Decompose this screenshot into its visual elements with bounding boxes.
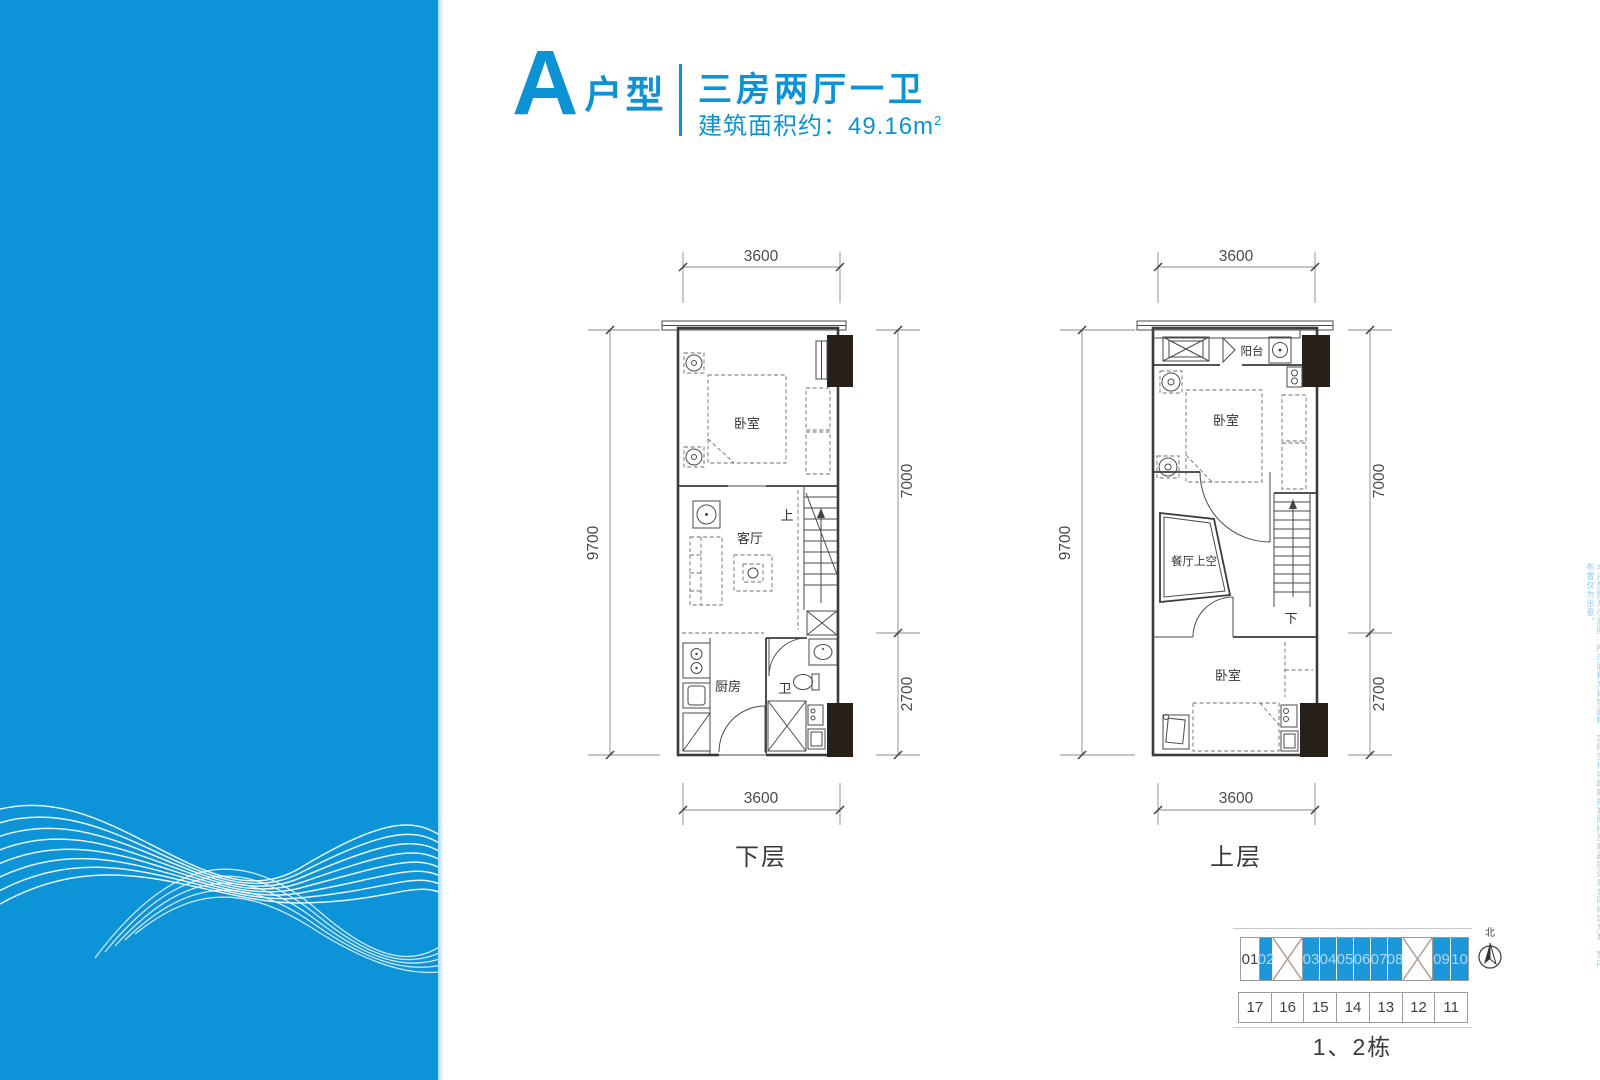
- north-compass-icon: 北: [1470, 924, 1510, 980]
- kitchen-fixtures: [683, 638, 765, 755]
- unit-suffix-label: 户型: [578, 77, 666, 121]
- dim-left: 9700: [585, 326, 660, 759]
- structural-block: [827, 335, 853, 387]
- bedroom-furniture: [684, 353, 830, 474]
- dim-top: 3600: [679, 248, 844, 303]
- dim-bottom: 3600: [679, 783, 844, 825]
- dim-left: 9700: [1057, 326, 1135, 759]
- room-label-living: 客厅: [737, 531, 763, 546]
- room-label-bedroom2: 卧室: [1215, 668, 1241, 683]
- keyplan-top-rule: [1233, 928, 1472, 929]
- title-divider: [679, 64, 682, 136]
- dim-value: 3600: [1219, 248, 1254, 265]
- dim-value: 2700: [899, 676, 916, 711]
- unit-cell-highlight: 08: [1388, 938, 1403, 980]
- room-label-bath: 卫: [778, 681, 791, 696]
- structural-block: [827, 703, 853, 757]
- unit-outline: [1153, 328, 1317, 755]
- balcony-fixtures: [1153, 337, 1302, 387]
- dim-value: 7000: [1371, 463, 1388, 498]
- floorplan-brochure-page: A 户型 三房两厅一卫 建筑面积约：49.16m2 3600 9700: [0, 0, 1600, 1080]
- blue-side-panel: [0, 0, 438, 1080]
- staircase: [804, 487, 838, 610]
- area-text: 建筑面积约：49.16m: [698, 113, 934, 140]
- structural-block: [1302, 335, 1330, 387]
- unit-cell-highlight: 02: [1260, 938, 1273, 980]
- compass-north-label: 北: [1485, 927, 1495, 939]
- dim-top: 3600: [1154, 248, 1319, 303]
- unit-type-title: A 户型: [512, 46, 666, 121]
- dim-value: 3600: [744, 790, 779, 807]
- stair-direction-label: 下: [1284, 611, 1297, 626]
- floor-caption-lower: 下层: [735, 844, 787, 871]
- layout-title: 三房两厅一卫: [698, 62, 926, 111]
- interior-walls: [678, 486, 838, 755]
- crossed-cell: [1273, 938, 1303, 980]
- dim-value: 3600: [744, 248, 779, 265]
- unit-row-bottom: 17 16 15 14 13 12 11: [1238, 992, 1468, 1023]
- dim-value: 7000: [899, 463, 916, 498]
- floor-caption-upper: 上层: [1210, 844, 1262, 871]
- dim-value: 9700: [585, 525, 602, 560]
- dim-right: 7000 2700: [876, 326, 920, 759]
- room-label-balcony: 阳台: [1241, 344, 1264, 358]
- unit-cell: 14: [1337, 993, 1370, 1022]
- unit-cell: 17: [1239, 993, 1272, 1022]
- dim-right: 7000 2700: [1348, 326, 1392, 759]
- dim-bottom: 3600: [1154, 783, 1319, 825]
- unit-cell: 13: [1370, 993, 1403, 1022]
- dim-value: 3600: [1219, 790, 1254, 807]
- unit-cell-highlight: 09: [1433, 938, 1451, 980]
- crossed-cell: [1403, 938, 1433, 980]
- area-label: 建筑面积约：49.16m2: [698, 106, 942, 141]
- unit-letter: A: [512, 46, 578, 121]
- cross-icon: [1403, 938, 1432, 980]
- area-exponent: 2: [934, 113, 942, 128]
- unit-cell: 15: [1304, 993, 1337, 1022]
- unit-cell: 12: [1403, 993, 1436, 1022]
- cross-icon: [1273, 938, 1302, 980]
- dim-value: 2700: [1371, 676, 1388, 711]
- unit-cell-highlight: 05: [1337, 938, 1354, 980]
- building-key-plan: 01 02 03 04 05 06 07 08 09 10 17 16 15 1…: [1233, 928, 1483, 1068]
- unit-cell-highlight: 10: [1451, 938, 1468, 980]
- room-label-dining-void: 餐厅上空: [1171, 554, 1217, 568]
- building-caption: 1、2栋: [1233, 1028, 1472, 1062]
- unit-cell-highlight: 04: [1320, 938, 1337, 980]
- wave-pattern-graphic: [0, 0, 438, 1080]
- unit-cell: 11: [1435, 993, 1467, 1022]
- unit-row-top: 01 02 03 04 05 06 07 08 09 10: [1240, 937, 1469, 981]
- compass: 北: [1470, 924, 1510, 980]
- unit-cell-highlight: 07: [1371, 938, 1388, 980]
- panel-edge-fade: [438, 0, 444, 1080]
- bedroom2-furniture: [1163, 642, 1313, 751]
- staircase: [1274, 493, 1310, 607]
- stair-direction-label: 上: [780, 508, 793, 523]
- room-label-bedroom: 卧室: [734, 416, 760, 431]
- unit-cell-highlight: 03: [1303, 938, 1320, 980]
- room-label-kitchen: 厨房: [715, 679, 741, 694]
- disclaimer-text: 本户型图为示意图，所示面积为建筑面积，实际交付以政府批准图纸及商品房买卖合同约定…: [1585, 563, 1600, 973]
- unit-cell-highlight: 06: [1354, 938, 1371, 980]
- upper-floor-plan: 3600 9700 7000 2700: [1030, 225, 1450, 885]
- dim-value: 9700: [1057, 525, 1074, 560]
- structural-block: [1300, 703, 1328, 757]
- unit-cell: 16: [1272, 993, 1305, 1022]
- room-label-bedroom: 卧室: [1213, 413, 1239, 428]
- lower-floor-plan: 3600 9700 7000 2700: [560, 225, 980, 885]
